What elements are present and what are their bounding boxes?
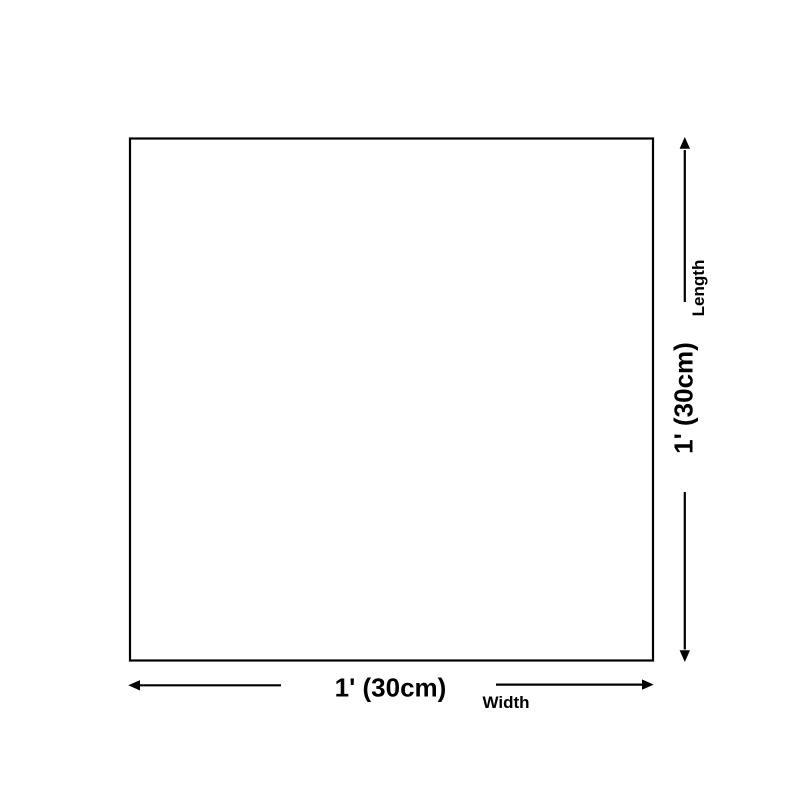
svg-text:1' (30cm): 1' (30cm): [669, 342, 699, 454]
svg-text:1' (30cm): 1' (30cm): [335, 673, 447, 703]
svg-text:Length: Length: [689, 260, 708, 317]
svg-text:Width: Width: [482, 693, 529, 712]
